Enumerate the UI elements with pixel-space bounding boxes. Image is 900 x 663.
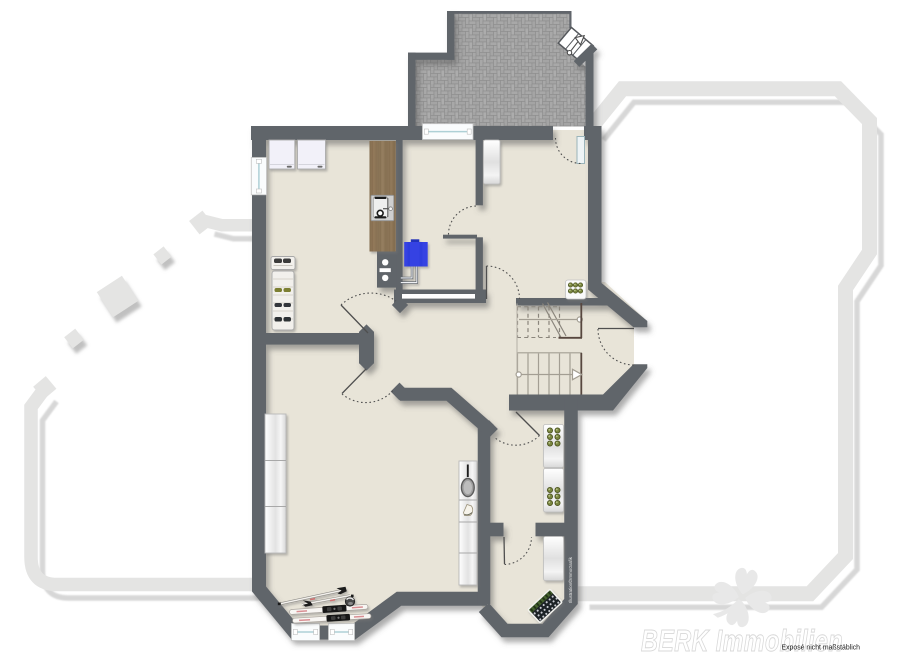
- svg-text:Illustration©ImmoGrafik: Illustration©ImmoGrafik: [568, 556, 573, 603]
- svg-text:BERK Immobilien: BERK Immobilien: [641, 624, 843, 658]
- svg-text:Exposé nicht maßstäblich: Exposé nicht maßstäblich: [781, 645, 860, 652]
